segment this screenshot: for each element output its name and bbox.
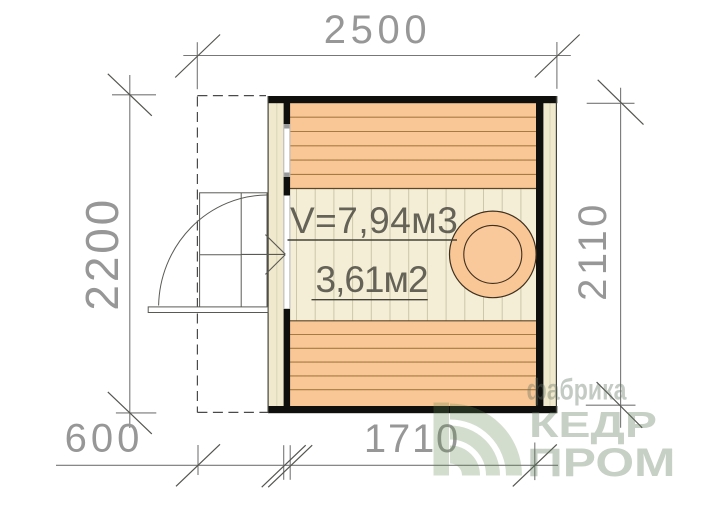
svg-text:V=7,94м3: V=7,94м3: [290, 200, 458, 241]
svg-text:2500: 2500: [324, 8, 431, 52]
svg-text:КЕДР: КЕДР: [529, 404, 657, 445]
svg-text:ПРОМ: ПРОМ: [527, 441, 676, 485]
svg-text:фабрика: фабрика: [527, 374, 627, 407]
svg-text:2200: 2200: [76, 197, 128, 311]
svg-text:600: 600: [65, 417, 144, 461]
svg-text:2110: 2110: [571, 201, 615, 301]
svg-text:3,61м2: 3,61м2: [316, 259, 428, 300]
